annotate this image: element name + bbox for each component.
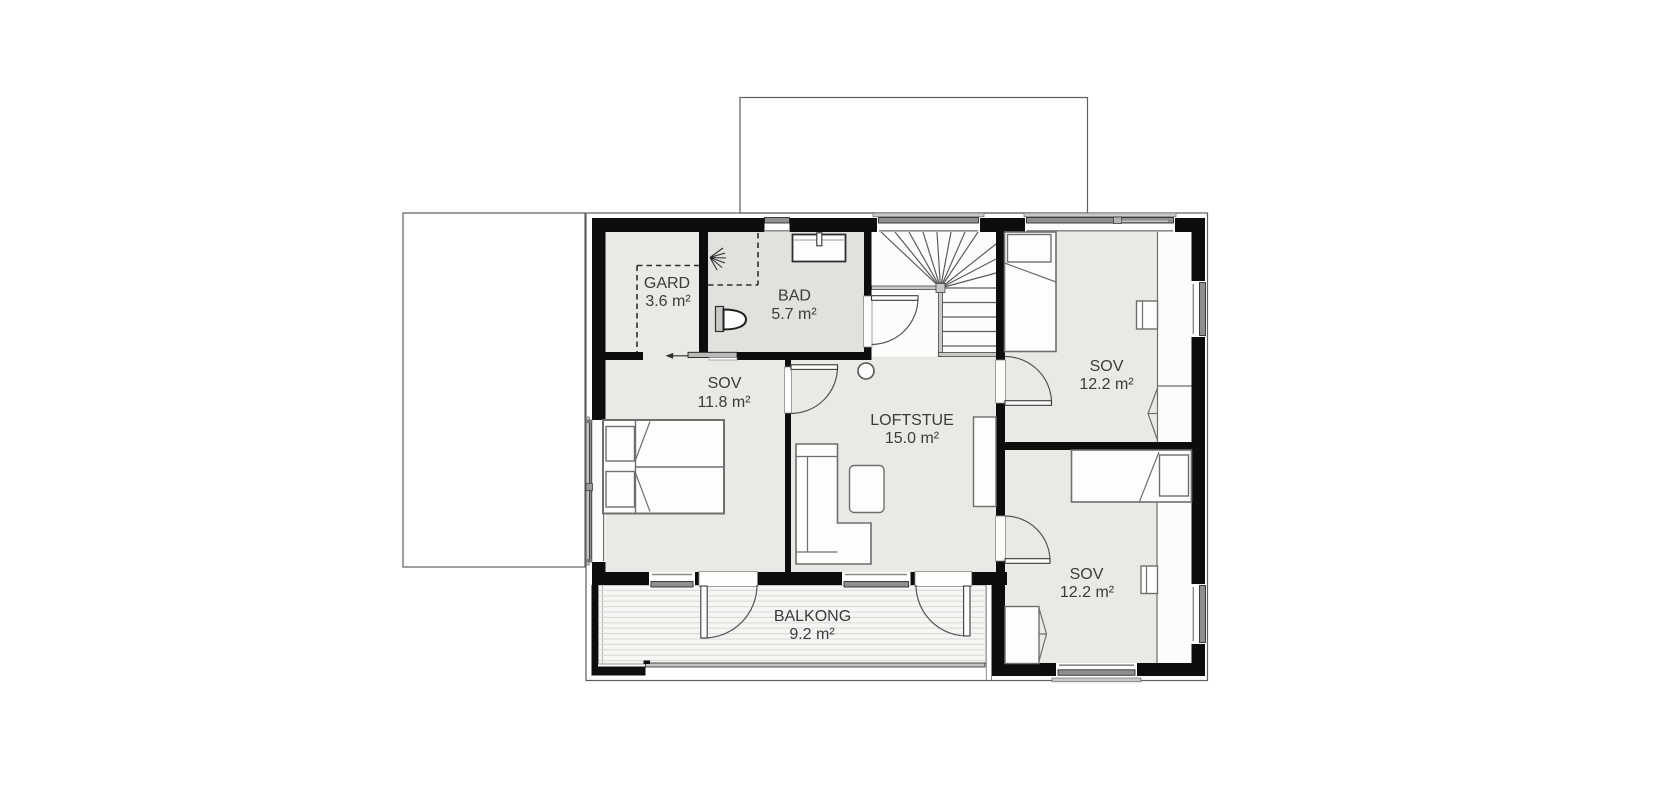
svg-text:SOV: SOV [1070, 566, 1104, 583]
svg-text:12.2 m²: 12.2 m² [1060, 584, 1115, 601]
svg-text:BALKONG: BALKONG [774, 608, 851, 625]
svg-text:GARD: GARD [644, 275, 690, 292]
svg-text:9.2 m²: 9.2 m² [789, 626, 835, 643]
svg-text:SOV: SOV [708, 375, 742, 392]
svg-text:12.2 m²: 12.2 m² [1079, 376, 1134, 393]
svg-text:LOFTSTUE: LOFTSTUE [870, 412, 954, 429]
svg-text:11.8 m²: 11.8 m² [697, 394, 751, 411]
svg-text:SOV: SOV [1090, 358, 1124, 375]
svg-text:BAD: BAD [778, 288, 811, 305]
svg-text:15.0 m²: 15.0 m² [885, 430, 940, 447]
svg-text:5.7 m²: 5.7 m² [771, 306, 817, 323]
svg-text:3.6 m²: 3.6 m² [645, 293, 691, 310]
